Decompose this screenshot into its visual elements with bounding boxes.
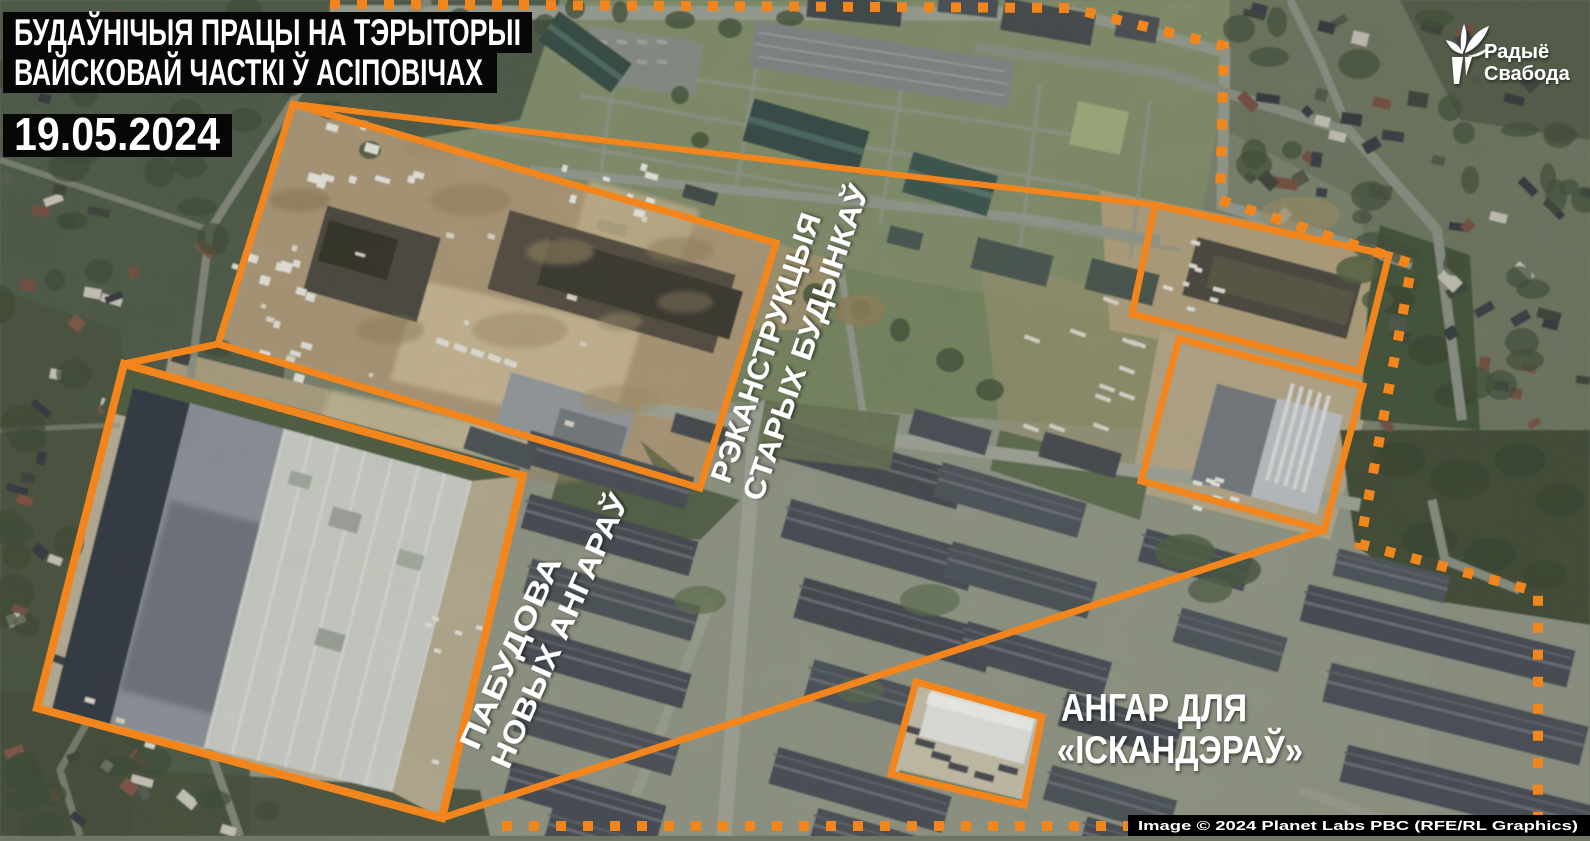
svg-text:БУДАЎНІЧЫЯ ПРАЦЫ НА ТЭРЫТОРЫІ: БУДАЎНІЧЫЯ ПРАЦЫ НА ТЭРЫТОРЫІ: [14, 11, 521, 53]
svg-text:Свабода: Свабода: [1484, 63, 1571, 85]
svg-text:«ІСКАНДЭРАЎ»: «ІСКАНДЭРАЎ»: [1057, 727, 1303, 772]
svg-text:АНГАР ДЛЯ: АНГАР ДЛЯ: [1061, 687, 1247, 730]
svg-text:Image © 2024 Planet Labs PBC (: Image © 2024 Planet Labs PBC (RFE/RL Gra…: [1138, 818, 1578, 833]
svg-text:Радыё: Радыё: [1484, 41, 1549, 63]
svg-text:ВАЙСКОВАЙ ЧАСТКІ Ў АСІПОВІЧАХ: ВАЙСКОВАЙ ЧАСТКІ Ў АСІПОВІЧАХ: [14, 51, 483, 93]
svg-text:19.05.2024: 19.05.2024: [14, 108, 220, 160]
